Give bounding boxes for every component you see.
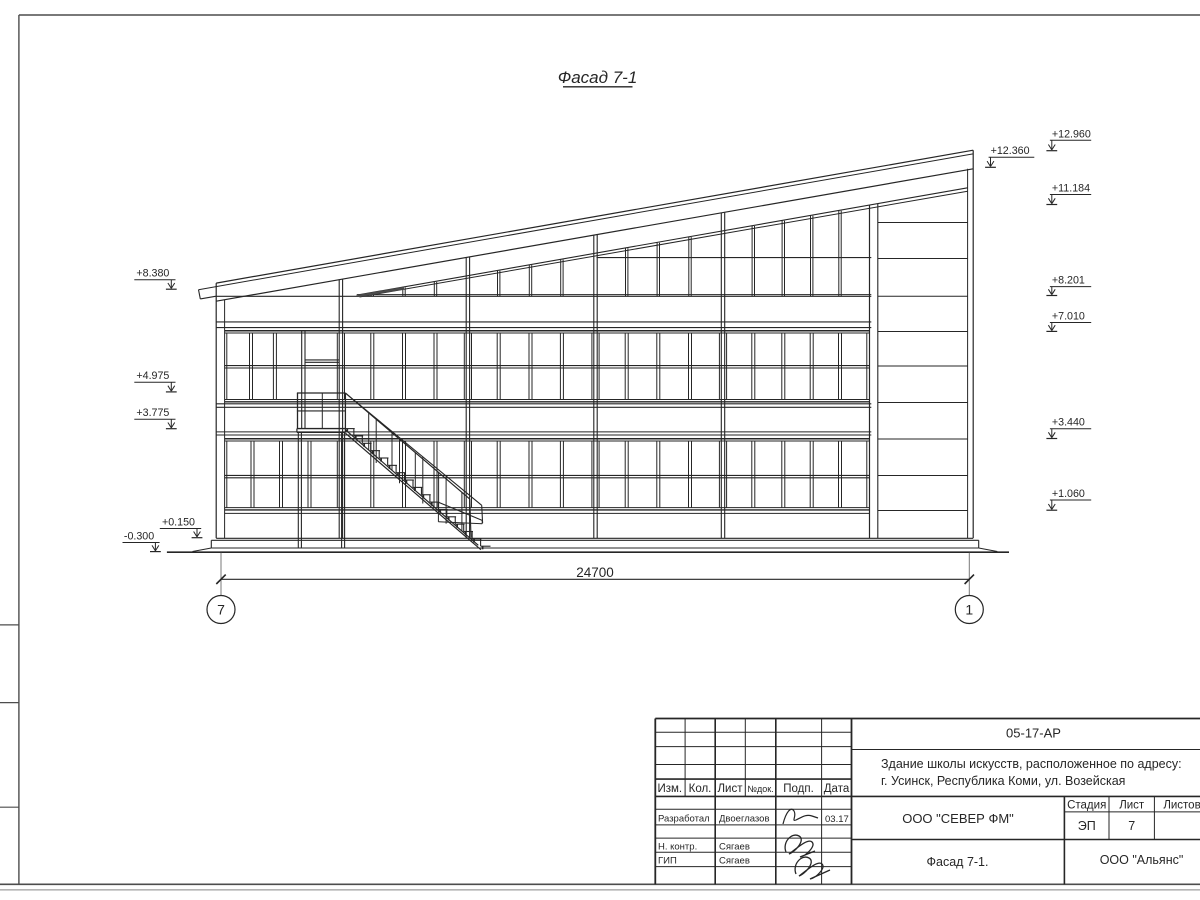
svg-text:ЭП: ЭП <box>1078 819 1096 833</box>
svg-text:Двоеглазов: Двоеглазов <box>719 814 770 825</box>
svg-text:Н. контр.: Н. контр. <box>658 842 697 853</box>
svg-text:+8.380: +8.380 <box>136 268 169 280</box>
svg-text:+11.184: +11.184 <box>1052 183 1090 195</box>
svg-text:+1.060: +1.060 <box>1052 488 1085 500</box>
svg-text:Фасад 7-1: Фасад 7-1 <box>558 68 638 87</box>
svg-text:Листов: Листов <box>1163 800 1200 812</box>
svg-text:7: 7 <box>1128 819 1135 833</box>
svg-text:24700: 24700 <box>576 565 614 580</box>
svg-text:г. Усинск, Республика Коми, ул: г. Усинск, Республика Коми, ул. Возейска… <box>881 774 1125 788</box>
svg-text:Изм.: Изм. <box>657 783 682 795</box>
svg-text:-0.300: -0.300 <box>124 531 154 543</box>
svg-text:+12.360: +12.360 <box>991 145 1030 157</box>
svg-text:Стадия: Стадия <box>1067 800 1106 812</box>
svg-text:+7.010: +7.010 <box>1052 311 1085 323</box>
svg-text:+3.775: +3.775 <box>136 407 169 419</box>
svg-text:№док.: №док. <box>747 784 773 794</box>
svg-text:+3.440: +3.440 <box>1052 417 1085 429</box>
svg-text:Подп.: Подп. <box>783 783 814 795</box>
svg-text:+4.975: +4.975 <box>136 370 169 382</box>
svg-text:+0.150: +0.150 <box>162 517 195 529</box>
svg-text:ГИП: ГИП <box>658 856 677 867</box>
svg-text:ООО "СЕВЕР ФМ": ООО "СЕВЕР ФМ" <box>902 811 1014 826</box>
svg-text:Лист: Лист <box>718 783 744 795</box>
svg-text:Фасад 7-1.: Фасад 7-1. <box>927 855 989 869</box>
svg-text:Кол.: Кол. <box>689 783 712 795</box>
svg-text:Дата: Дата <box>824 783 850 795</box>
svg-text:Здание школы искусств, располо: Здание школы искусств, расположенное по … <box>881 757 1182 771</box>
svg-text:+8.201: +8.201 <box>1052 275 1085 287</box>
svg-text:Сягаев: Сягаев <box>719 842 750 853</box>
svg-text:7: 7 <box>217 602 225 618</box>
svg-text:ООО "Альянс": ООО "Альянс" <box>1100 853 1184 867</box>
svg-text:1: 1 <box>965 602 973 618</box>
svg-text:+12.960: +12.960 <box>1052 128 1091 140</box>
svg-text:03.17: 03.17 <box>825 814 849 825</box>
svg-text:Сягаев: Сягаев <box>719 856 750 867</box>
svg-text:Разработал: Разработал <box>658 814 710 825</box>
svg-text:Лист: Лист <box>1119 800 1145 812</box>
svg-text:05-17-АР: 05-17-АР <box>1006 726 1061 741</box>
